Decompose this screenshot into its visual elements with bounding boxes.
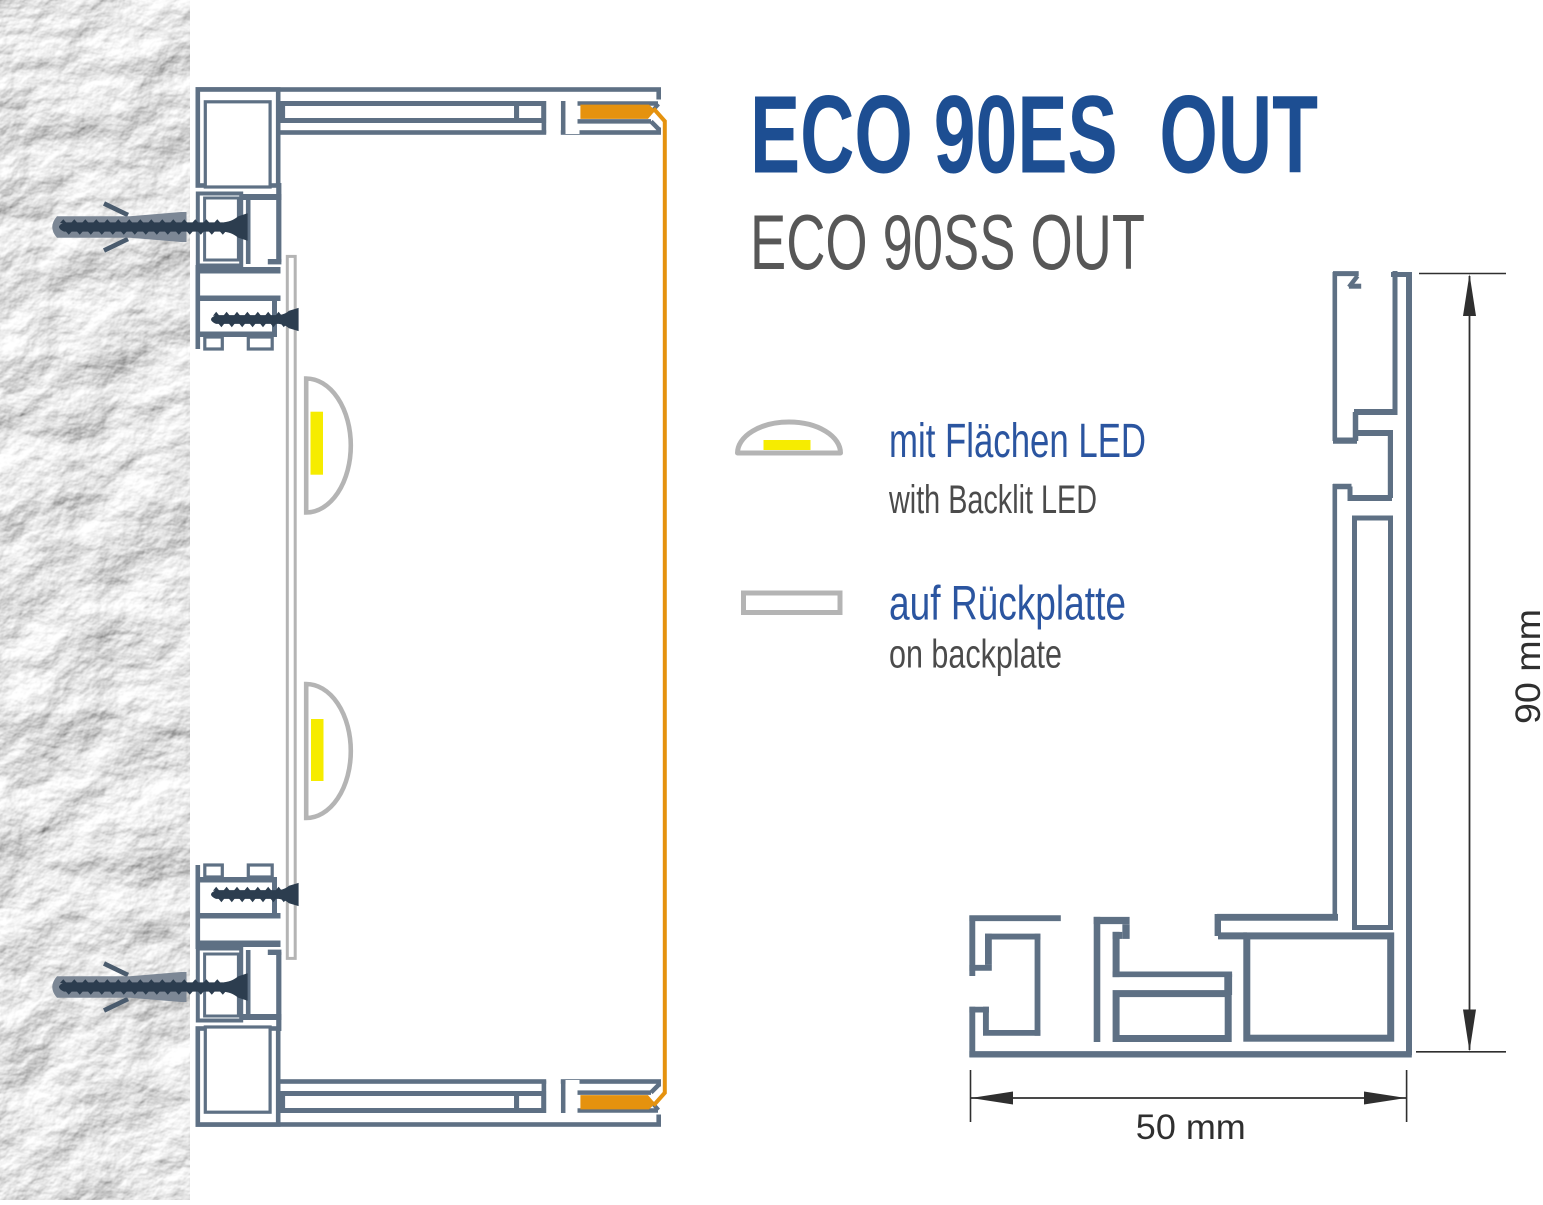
- svg-text:ECO 90SS OUT: ECO 90SS OUT: [750, 198, 1145, 286]
- svg-text:mit Flächen LED: mit Flächen LED: [889, 415, 1146, 468]
- svg-text:auf Rückplatte: auf Rückplatte: [889, 577, 1126, 630]
- svg-text:90 mm: 90 mm: [1509, 609, 1543, 724]
- svg-text:50 mm: 50 mm: [1136, 1108, 1246, 1147]
- svg-text:with Backlit LED: with Backlit LED: [888, 478, 1097, 522]
- svg-text:on backplate: on backplate: [889, 632, 1062, 676]
- svg-text:ECO 90ES OUT: ECO 90ES OUT: [750, 74, 1318, 197]
